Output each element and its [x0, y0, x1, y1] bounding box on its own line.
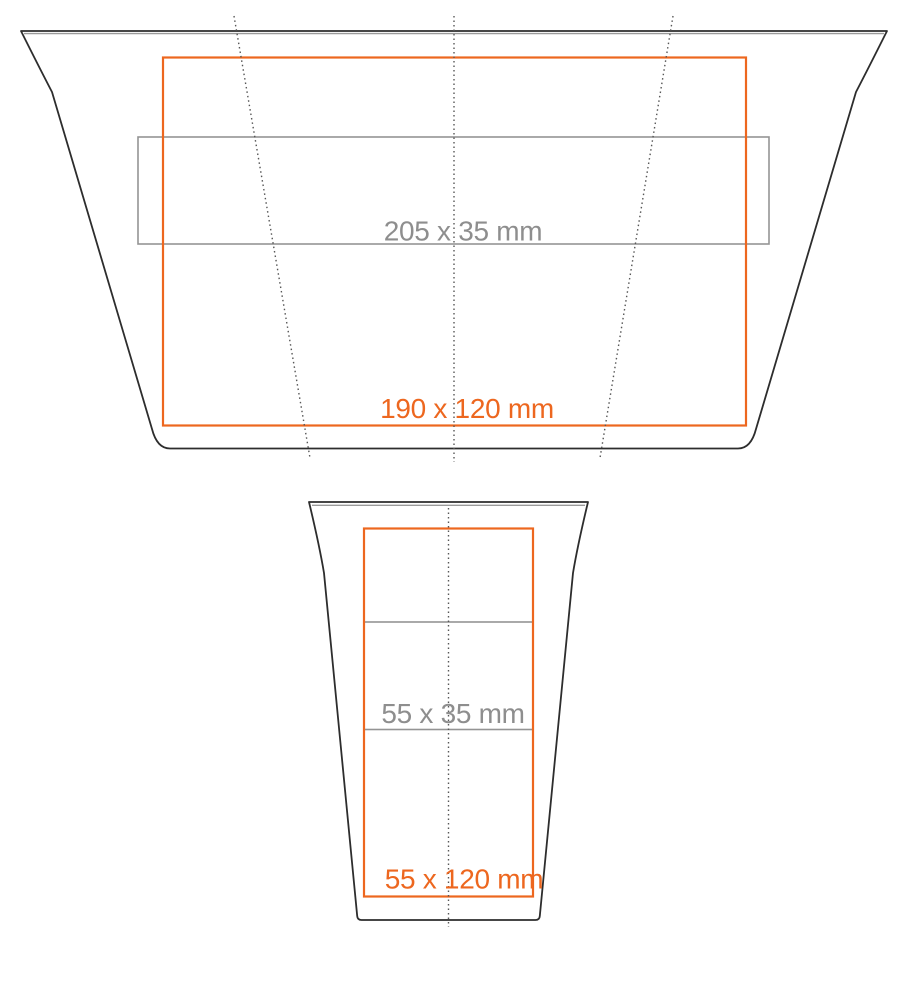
- cup-print-dieline-svg: 205 x 35 mm 190 x 120 mm 55 x 35 mm 55 x…: [0, 0, 900, 982]
- development-print-label: 190 x 120 mm: [380, 393, 554, 424]
- development-strip-label: 205 x 35 mm: [384, 216, 543, 247]
- development-view: 205 x 35 mm 190 x 120 mm: [21, 16, 887, 462]
- diagram-canvas: 205 x 35 mm 190 x 120 mm 55 x 35 mm 55 x…: [0, 0, 900, 982]
- front-view: 55 x 35 mm 55 x 120 mm: [309, 502, 588, 927]
- front-print-label: 55 x 120 mm: [385, 864, 544, 895]
- front-strip-label: 55 x 35 mm: [381, 698, 524, 729]
